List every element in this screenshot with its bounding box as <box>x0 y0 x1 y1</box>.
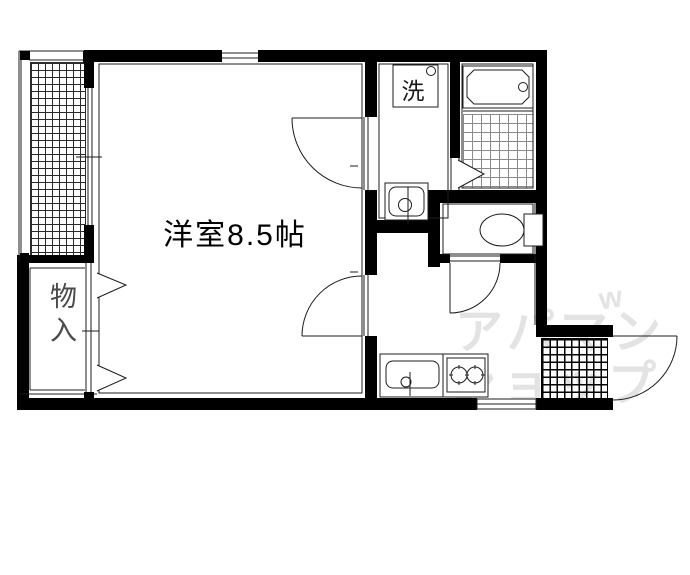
toilet-icon <box>480 214 543 246</box>
room-label: 洋室8.5帖 <box>140 210 330 254</box>
closet-door-swing-icon <box>97 365 126 391</box>
floor-plan: w アパマン ショップ <box>0 0 690 575</box>
door-room-washroom <box>292 117 368 190</box>
bath-door-swing-icon <box>458 160 484 188</box>
bath-door <box>451 158 484 190</box>
closet-door-swing-icon <box>97 273 126 298</box>
floor-plan-drawing <box>0 0 690 575</box>
bathroom <box>451 64 533 190</box>
wash-basin-icon <box>385 183 428 224</box>
entry-step <box>477 399 536 409</box>
balcony-window <box>76 60 102 255</box>
closet-label: 物入 <box>42 282 81 350</box>
toilet-door <box>450 256 500 313</box>
top-window <box>222 53 258 58</box>
door-room-hall <box>302 272 368 336</box>
entry-door <box>613 336 677 400</box>
bathtub-icon <box>463 66 533 108</box>
kitchen <box>380 354 488 397</box>
washer-label: 洗 <box>396 72 430 106</box>
